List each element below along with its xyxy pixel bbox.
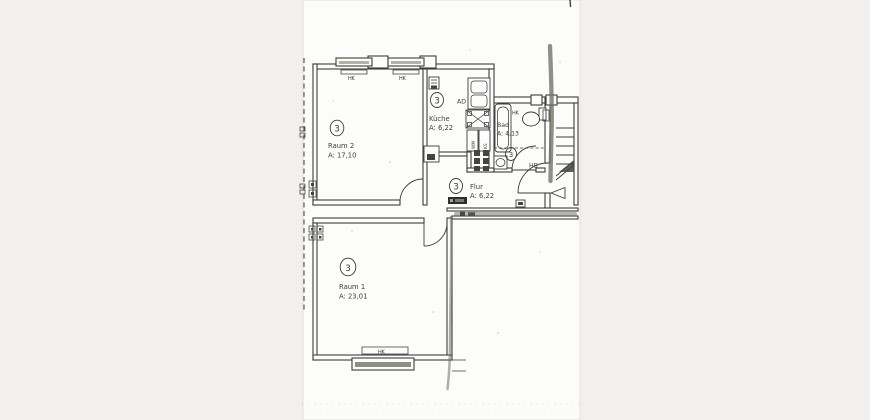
room-name: Flur xyxy=(470,183,483,191)
radiator-label: HK xyxy=(348,76,356,82)
kitchen-appliance-icon xyxy=(424,146,439,162)
room-area: A: 17,10 xyxy=(328,152,356,160)
room-area: A: 23,01 xyxy=(339,293,367,301)
hb-label: HB xyxy=(529,163,538,170)
room-area: A: 6,22 xyxy=(429,124,453,132)
appliance-label-wm: WM xyxy=(471,141,477,149)
scanned-floor-plan-page: HK HK HK xyxy=(0,0,870,420)
room-number: 3 xyxy=(345,264,351,274)
appliance-label-ks: KS xyxy=(483,143,489,149)
radiator-label: HK xyxy=(378,350,386,356)
sink-icon xyxy=(468,78,490,109)
washbasin-icon xyxy=(494,156,507,169)
room-name: Bad xyxy=(497,122,509,129)
duct-label: AD xyxy=(457,99,466,106)
room-name: Raum 1 xyxy=(339,283,365,291)
room-number: 3 xyxy=(334,125,340,135)
radiator-label: HK xyxy=(399,76,407,82)
room-number: 3 xyxy=(509,151,513,159)
room-name: Raum 2 xyxy=(328,142,354,150)
room-number: 3 xyxy=(434,97,440,107)
floor-plan-drawing: HK HK HK xyxy=(0,0,870,420)
radiator-label: HK xyxy=(512,111,520,117)
room-area: A: 6,22 xyxy=(470,192,494,200)
stove-icon xyxy=(466,110,490,128)
room-name: Küche xyxy=(429,115,450,123)
room-area: A: 4,13 xyxy=(497,131,519,138)
room-number: 3 xyxy=(453,183,459,193)
